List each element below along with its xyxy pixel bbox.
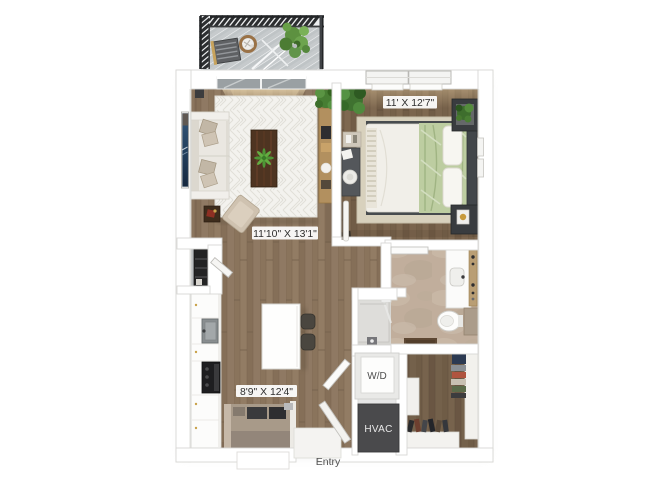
- svg-text:W/D: W/D: [367, 371, 386, 382]
- svg-text:8'9" X 12'4": 8'9" X 12'4": [240, 387, 293, 398]
- svg-text:11'10" X 13'1": 11'10" X 13'1": [253, 229, 317, 240]
- svg-text:HVAC: HVAC: [364, 424, 392, 435]
- svg-text:11' X 12'7": 11' X 12'7": [386, 98, 435, 109]
- svg-text:Entry: Entry: [316, 456, 341, 468]
